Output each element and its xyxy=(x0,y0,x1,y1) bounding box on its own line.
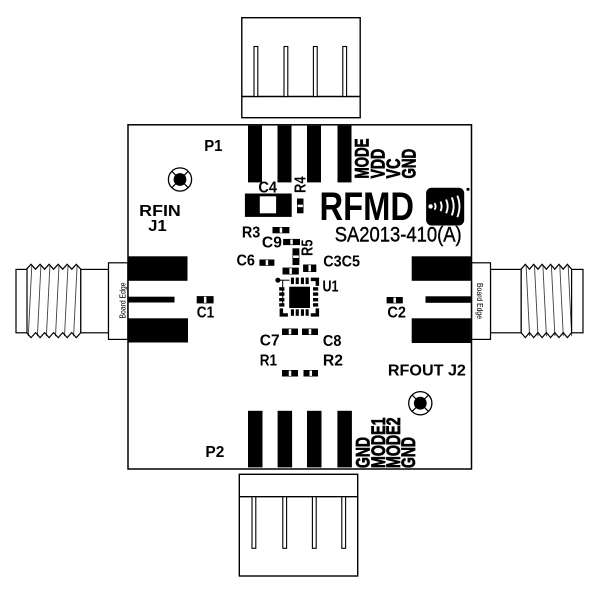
svg-text:Board Edge: Board Edge xyxy=(118,282,128,318)
svg-text:P1: P1 xyxy=(204,138,222,155)
svg-text:J1: J1 xyxy=(148,218,167,235)
svg-text:R2: R2 xyxy=(323,352,343,369)
svg-text:U1: U1 xyxy=(323,279,339,296)
svg-text:Board Edge: Board Edge xyxy=(475,283,485,319)
svg-text:RFOUT J2: RFOUT J2 xyxy=(388,363,466,380)
svg-text:GND: GND xyxy=(399,437,420,468)
svg-text:R5: R5 xyxy=(300,239,317,256)
svg-text:R1: R1 xyxy=(260,352,277,369)
svg-text:SA2013-410(A): SA2013-410(A) xyxy=(335,224,462,247)
svg-text:GND: GND xyxy=(400,149,421,179)
svg-text:C7: C7 xyxy=(260,332,280,349)
svg-text:C3C5: C3C5 xyxy=(323,254,360,271)
svg-text:C9: C9 xyxy=(262,235,282,252)
svg-text:R4: R4 xyxy=(293,176,310,193)
svg-text:C8: C8 xyxy=(323,333,342,350)
svg-text:C1: C1 xyxy=(197,304,214,321)
svg-text:C2: C2 xyxy=(387,304,406,321)
svg-text:RFMD: RFMD xyxy=(320,185,415,229)
svg-text:R3: R3 xyxy=(242,224,260,241)
svg-text:C6: C6 xyxy=(237,253,255,270)
svg-text:P2: P2 xyxy=(205,444,224,461)
